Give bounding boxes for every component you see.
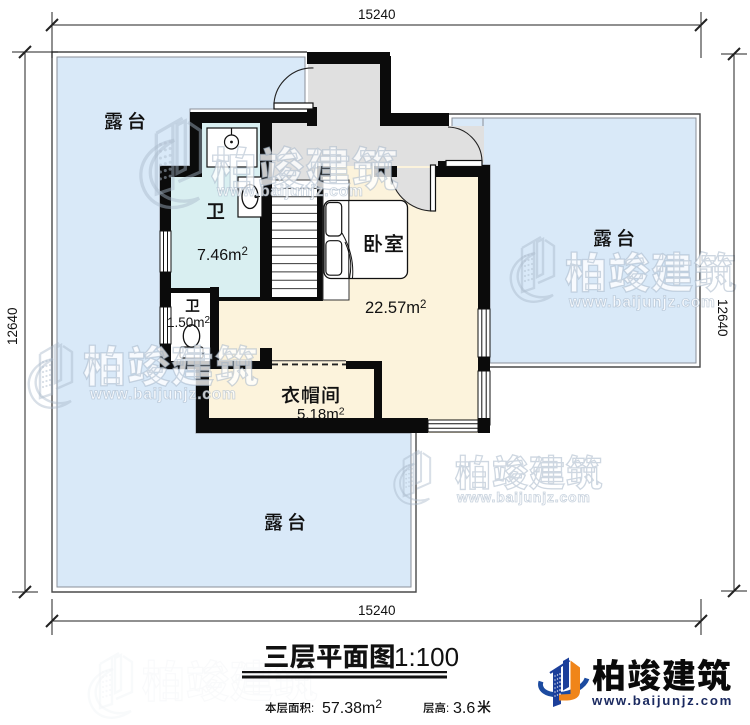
svg-text:三层平面图: 三层平面图 — [263, 635, 396, 674]
svg-text:7.46m2: 7.46m2 — [197, 246, 248, 264]
svg-text:1.50m2: 1.50m2 — [167, 315, 211, 330]
svg-text:3.6: 3.6 — [453, 700, 475, 717]
svg-text:www.baijunjz.com: www.baijunjz.com — [89, 386, 237, 403]
svg-text:15240: 15240 — [358, 7, 396, 22]
svg-text:5.18m2: 5.18m2 — [297, 406, 345, 424]
svg-text:柏竣建筑: 柏竣建筑 — [592, 649, 732, 698]
svg-text:露台: 露台 — [104, 107, 150, 134]
svg-text:www.baijunjz.com: www.baijunjz.com — [568, 294, 716, 311]
svg-text:57.38m2: 57.38m2 — [322, 697, 382, 717]
svg-text:露台: 露台 — [264, 508, 310, 535]
svg-text:卫: 卫 — [206, 197, 225, 224]
svg-text:柏竣建筑: 柏竣建筑 — [565, 240, 737, 301]
svg-text:米: 米 — [477, 697, 491, 717]
svg-text:15240: 15240 — [358, 603, 396, 618]
svg-text:卧室: 卧室 — [363, 228, 405, 257]
svg-text:www.baijunjz.com: www.baijunjz.com — [216, 183, 364, 200]
svg-text:1:100: 1:100 — [394, 642, 459, 672]
svg-text:层高:: 层高: — [423, 700, 449, 716]
svg-text:12640: 12640 — [5, 307, 20, 345]
svg-text:衣帽间: 衣帽间 — [281, 381, 341, 408]
svg-text:12640: 12640 — [715, 299, 730, 337]
svg-text:22.57m2: 22.57m2 — [365, 299, 426, 317]
svg-text:www.baijunjz.com: www.baijunjz.com — [456, 489, 591, 505]
svg-text:卫: 卫 — [185, 295, 200, 316]
svg-text:本层面积:: 本层面积: — [265, 700, 314, 716]
svg-text:www.baijunjz.com: www.baijunjz.com — [591, 693, 733, 708]
